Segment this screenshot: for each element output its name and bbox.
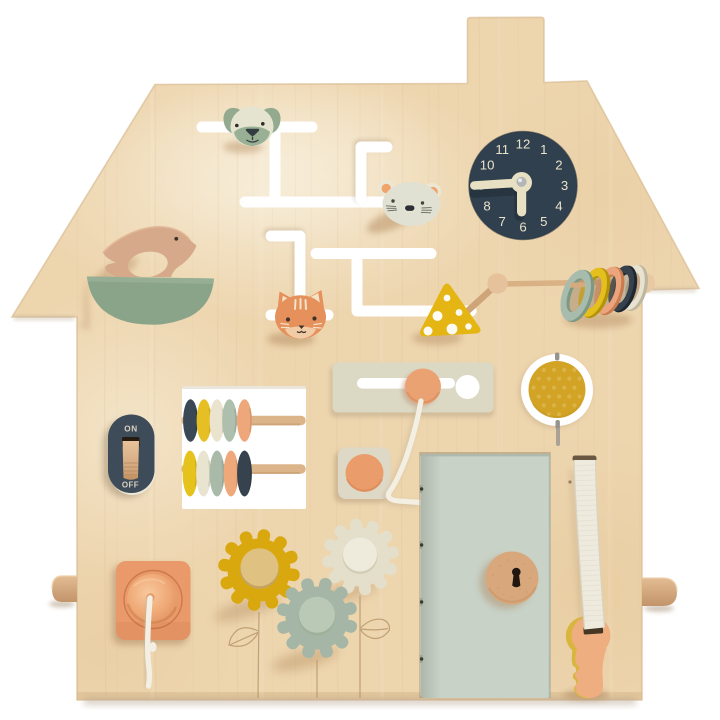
svg-text:ON: ON [124,425,137,434]
svg-text:10: 10 [480,157,495,172]
svg-text:1: 1 [540,142,547,157]
svg-text:6: 6 [519,220,526,235]
svg-text:5: 5 [540,214,547,229]
svg-text:8: 8 [483,199,490,214]
svg-text:4: 4 [555,199,562,214]
svg-text:11: 11 [495,142,509,157]
svg-text:2: 2 [555,157,562,172]
svg-text:OFF: OFF [122,481,139,490]
svg-text:7: 7 [499,214,506,229]
svg-text:3: 3 [561,178,568,193]
svg-text:12: 12 [516,137,531,152]
